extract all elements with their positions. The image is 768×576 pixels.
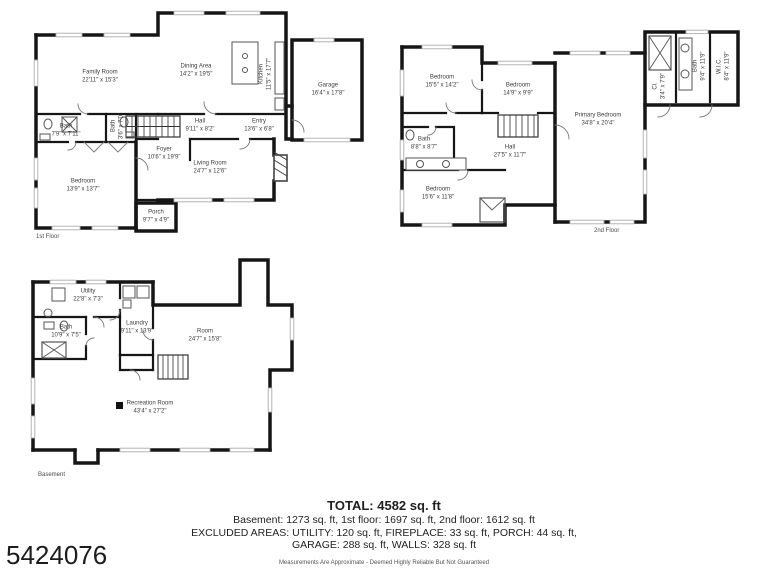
disclaimer: Measurements Are Approximate - Deemed Hi… [0, 560, 768, 566]
listing-number: 5424076 [6, 540, 107, 571]
room-label-primary-bedroom: Primary Bedroom 34'8" x 20'4" [575, 113, 622, 128]
room-dims: 3'6" x 7'0" [118, 113, 124, 139]
closet [480, 198, 505, 222]
room-name: Porch [143, 210, 169, 218]
room-dims: 16'4" x 17'8" [312, 90, 345, 96]
basement-caption: Basement [38, 472, 65, 478]
room-label-entry: Entry 13'6" x 6'8" [244, 119, 274, 134]
door-arcs [68, 102, 304, 170]
room-label-porch: Porch 9'7" x 4'9" [143, 210, 169, 225]
room-name: Kitchen [259, 58, 267, 90]
room-name: Bedroom [503, 83, 533, 91]
room-label-bath-small-1f: Bath 3'6" x 7'0" [111, 113, 126, 139]
basement-plan: Utility 22'8" x 7'3" Bath 10'9" x 7'5" L… [30, 258, 320, 486]
stairs [498, 115, 538, 137]
room-name: W.I.C. [717, 51, 725, 80]
floor-areas: Basement: 1273 sq. ft, 1st floor: 1697 s… [0, 514, 768, 527]
room-dims: 24'7" x 12'6" [194, 168, 227, 174]
room-dims: 8'4" x 11'9" [724, 51, 730, 80]
room-name: Foyer [148, 147, 181, 155]
floorplan-page: { "listing": { "number": "5424076" }, "c… [0, 0, 768, 576]
room-dims: 24'7" x 15'8" [189, 336, 222, 342]
room-name: Bath [693, 51, 701, 80]
room-name: Hall [494, 145, 526, 153]
room-dims: 3'4" x 7'9" [660, 73, 666, 99]
room-dims: 22'8" x 7'3" [73, 296, 103, 302]
room-label-bedroom-1-2f: Bedroom 15'5" x 14'2" [426, 75, 459, 90]
room-dims: 11'5" x 17'7" [266, 58, 272, 90]
room-label-bedroom-1f: Bedroom 13'9" x 13'7" [67, 179, 100, 194]
room-name: Entry [244, 119, 274, 127]
room-name: Laundry [121, 321, 153, 329]
room-dims: 9'4" x 11'9" [700, 51, 706, 80]
room-dims: 43'4" x 27'2" [134, 408, 167, 414]
door-arcs [428, 80, 712, 180]
room-dims: 13'6" x 6'8" [244, 126, 274, 132]
area-summary: TOTAL: 4582 sq. ft Basement: 1273 sq. ft… [0, 498, 768, 566]
room-label-dining-area: Dining Area 14'2" x 19'5" [180, 64, 213, 79]
excluded-areas-1: EXCLUDED AREAS: UTILITY: 120 sq. ft, FIR… [0, 527, 768, 540]
room-name: Primary Bedroom [575, 113, 622, 121]
room-label-garage: Garage 16'4" x 17'8" [312, 83, 345, 98]
room-label-foyer: Foyer 10'6" x 19'9" [148, 147, 181, 162]
room-label-recreation-room: Recreation Room 43'4" x 27'2" [127, 401, 174, 416]
room-label-bath-2f: Bath 8'8" x 8'7" [411, 137, 437, 152]
room-label-room: Room 24'7" x 15'8" [189, 329, 222, 344]
room-dims: 15'5" x 14'2" [426, 82, 459, 88]
room-label-family-room: Family Room 22'11" x 15'3" [82, 70, 118, 85]
room-name: Bath [51, 325, 81, 333]
room-name: Bath [411, 137, 437, 145]
room-name: Recreation Room [127, 401, 174, 409]
room-label-kitchen: Kitchen 11'5" x 17'7" [259, 58, 274, 90]
fireplace [274, 152, 287, 181]
room-label-bath-upper-2f: Bath 9'4" x 11'9" [693, 51, 708, 80]
room-label-living-room: Living Room 24'7" x 12'6" [193, 161, 226, 176]
room-label-hall-2f: Hall 27'5" x 11'7" [494, 145, 526, 160]
room-label-laundry: Laundry 9'11" x 13'9" [121, 321, 153, 336]
room-name: Bath [111, 113, 119, 139]
laundry-fixtures [123, 286, 149, 308]
second-floor-caption: 2nd Floor [594, 228, 619, 234]
room-dims: 8'8" x 8'7" [411, 144, 437, 150]
room-dims: 34'8" x 20'4" [582, 120, 615, 126]
room-label-bath-basement: Bath 10'9" x 7'5" [51, 325, 81, 340]
room-name: Room [189, 329, 222, 337]
utility-fixtures [44, 288, 65, 317]
room-name: Living Room [193, 161, 226, 169]
support-column [116, 402, 123, 409]
room-dims: 13'9" x 13'7" [67, 186, 100, 192]
exterior-walls [33, 260, 292, 463]
room-name: Garage [312, 83, 345, 91]
first-floor-plan: Family Room 22'11" x 15'3" Dining Area 1… [28, 8, 378, 258]
room-dims: 14'2" x 19'5" [180, 71, 213, 77]
total-area: TOTAL: 4582 sq. ft [0, 498, 768, 513]
room-dims: 22'11" x 15'3" [82, 77, 118, 83]
second-floor-plan: Bedroom 15'5" x 14'2" Bedroom 14'9" x 9'… [398, 30, 746, 242]
excluded-areas-2: GARAGE: 288 sq. ft, WALLS: 328 sq. ft [0, 539, 768, 552]
room-name: Bedroom [422, 187, 454, 195]
room-label-hall-1f: Hall 9'11" x 8'2" [185, 119, 214, 134]
closet-doors [84, 142, 128, 152]
room-dims: 9'11" x 8'2" [185, 126, 214, 132]
room-label-closet-2f: Cl. 3'4" x 7'9" [653, 73, 668, 99]
room-dims: 9'7" x 4'9" [143, 217, 169, 223]
first-floor-caption: 1st Floor [36, 234, 59, 240]
room-dims: 14'9" x 9'9" [503, 90, 533, 96]
room-name: Bath [51, 124, 80, 132]
room-name: Utility [73, 289, 103, 297]
room-name: Bedroom [67, 179, 100, 187]
room-dims: 10'6" x 19'9" [148, 154, 181, 160]
stairs [158, 355, 188, 379]
room-dims: 27'5" x 11'7" [494, 152, 526, 158]
room-label-bedroom-3-2f: Bedroom 15'6" x 11'8" [422, 187, 454, 202]
room-name: Family Room [82, 70, 118, 78]
room-label-bedroom-2-2f: Bedroom 14'9" x 9'9" [503, 83, 533, 98]
room-name: Hall [185, 119, 214, 127]
room-name: Cl. [653, 73, 661, 99]
room-name: Dining Area [180, 64, 213, 72]
room-dims: 10'9" x 7'5" [51, 332, 81, 338]
room-dims: 9'11" x 13'9" [121, 328, 153, 334]
room-dims: 7'9" x 7'11" [51, 131, 80, 137]
room-label-wic: W.I.C. 8'4" x 11'9" [717, 51, 732, 80]
room-label-bath-1f: Bath 7'9" x 7'11" [51, 124, 80, 139]
room-name: Bedroom [426, 75, 459, 83]
room-dims: 15'6" x 11'8" [422, 194, 454, 200]
room-label-utility: Utility 22'8" x 7'3" [73, 289, 103, 304]
